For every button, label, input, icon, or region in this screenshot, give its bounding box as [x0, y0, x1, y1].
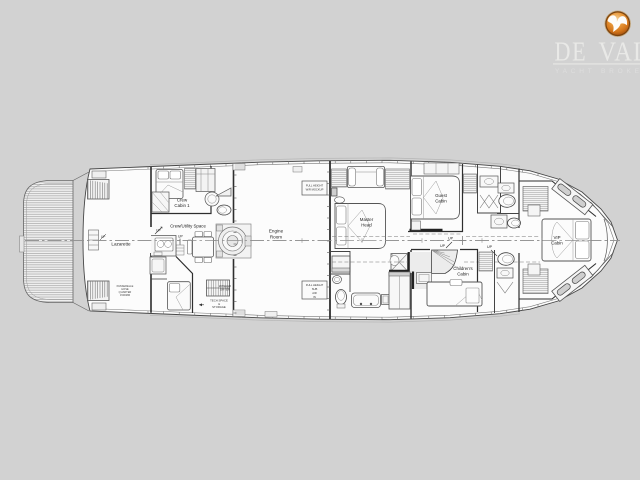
- svg-text:FULL HEIGHT: FULL HEIGHT: [306, 283, 324, 287]
- svg-text:AIR: AIR: [312, 291, 317, 295]
- svg-text:Engine: Engine: [269, 229, 284, 234]
- svg-text:Cabin: Cabin: [435, 199, 447, 204]
- svg-text:W/R MOCKUP: W/R MOCKUP: [306, 188, 324, 192]
- svg-text:Lazarette: Lazarette: [111, 242, 131, 247]
- svg-text:Children's: Children's: [453, 266, 473, 271]
- svg-text:SUB: SUB: [312, 287, 318, 291]
- svg-text:Cabin: Cabin: [457, 272, 469, 277]
- svg-text:Room: Room: [270, 235, 282, 240]
- svg-text:VIP: VIP: [553, 235, 560, 240]
- svg-text:Crew/Utility Space: Crew/Utility Space: [170, 224, 206, 229]
- svg-text:1500MM: 1500MM: [120, 293, 130, 297]
- svg-text:STORAGE: STORAGE: [212, 305, 226, 309]
- svg-text:YACHT BROKERS: YACHT BROKERS: [555, 68, 640, 75]
- svg-text:UP: UP: [448, 237, 454, 241]
- svg-text:UP: UP: [440, 244, 446, 248]
- svg-text:DE: DE: [555, 38, 588, 68]
- svg-text:Master: Master: [360, 217, 374, 222]
- svg-text:UP: UP: [487, 245, 493, 249]
- svg-text:UP: UP: [178, 235, 183, 239]
- svg-text:Head: Head: [361, 223, 372, 228]
- svg-text:IN: IN: [313, 295, 316, 299]
- svg-text:Guest: Guest: [435, 193, 447, 198]
- svg-text:FULL HEIGHT: FULL HEIGHT: [306, 184, 324, 188]
- svg-text:Cabin 1: Cabin 1: [174, 203, 190, 208]
- svg-text:VALK: VALK: [599, 36, 640, 66]
- svg-text:Cabin: Cabin: [551, 241, 563, 246]
- svg-text:DRYER: DRYER: [220, 288, 230, 292]
